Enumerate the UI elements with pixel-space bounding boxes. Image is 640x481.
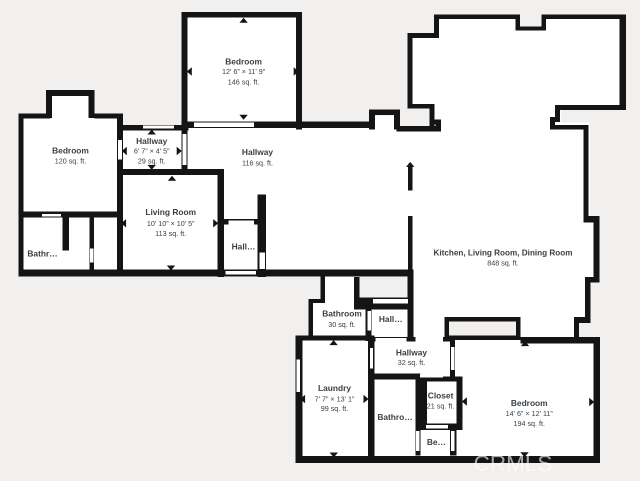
svg-text:848 sq. ft.: 848 sq. ft. bbox=[487, 259, 519, 268]
svg-text:14' 6” × 12' 11”: 14' 6” × 12' 11” bbox=[506, 409, 554, 418]
svg-text:Hall…: Hall… bbox=[379, 314, 403, 324]
svg-text:Hallway: Hallway bbox=[242, 147, 274, 157]
svg-text:Hall…: Hall… bbox=[232, 242, 256, 252]
svg-text:Hallway: Hallway bbox=[396, 347, 428, 357]
svg-text:Bedroom: Bedroom bbox=[511, 398, 548, 408]
svg-text:120 sq. ft.: 120 sq. ft. bbox=[55, 157, 87, 166]
svg-text:Closet: Closet bbox=[428, 391, 454, 401]
svg-text:Kitchen, Living Room, Dining R: Kitchen, Living Room, Dining Room bbox=[434, 247, 573, 257]
svg-text:Hallway: Hallway bbox=[136, 136, 168, 146]
svg-text:10' 10” × 10' 5”: 10' 10” × 10' 5” bbox=[147, 219, 195, 228]
svg-text:99 sq. ft.: 99 sq. ft. bbox=[321, 404, 349, 413]
svg-text:Living Room: Living Room bbox=[145, 207, 196, 217]
svg-text:30 sq. ft.: 30 sq. ft. bbox=[328, 320, 356, 329]
svg-text:116 sq. ft.: 116 sq. ft. bbox=[242, 159, 273, 168]
svg-text:146 sq. ft.: 146 sq. ft. bbox=[228, 78, 260, 87]
svg-text:12' 6” × 11' 9”: 12' 6” × 11' 9” bbox=[222, 67, 266, 76]
svg-text:Bedroom: Bedroom bbox=[52, 145, 89, 155]
svg-text:32 sq. ft.: 32 sq. ft. bbox=[398, 358, 426, 367]
svg-text:6' 7” × 4' 5”: 6' 7” × 4' 5” bbox=[134, 146, 170, 155]
svg-text:Bathro…: Bathro… bbox=[377, 412, 412, 422]
svg-text:Laundry: Laundry bbox=[318, 383, 351, 393]
svg-text:Bathroom: Bathroom bbox=[322, 309, 362, 319]
svg-text:21 sq. ft.: 21 sq. ft. bbox=[427, 402, 455, 411]
svg-text:194 sq. ft.: 194 sq. ft. bbox=[513, 419, 545, 428]
svg-text:CRMLS: CRMLS bbox=[474, 451, 553, 476]
svg-text:Bathr…: Bathr… bbox=[27, 248, 57, 258]
svg-text:29 sq. ft.: 29 sq. ft. bbox=[138, 157, 166, 166]
svg-text:7' 7” × 13' 1”: 7' 7” × 13' 1” bbox=[315, 394, 355, 403]
svg-text:Bedroom: Bedroom bbox=[225, 56, 262, 66]
svg-text:Be…: Be… bbox=[427, 437, 446, 447]
svg-text:113 sq. ft.: 113 sq. ft. bbox=[155, 229, 186, 238]
